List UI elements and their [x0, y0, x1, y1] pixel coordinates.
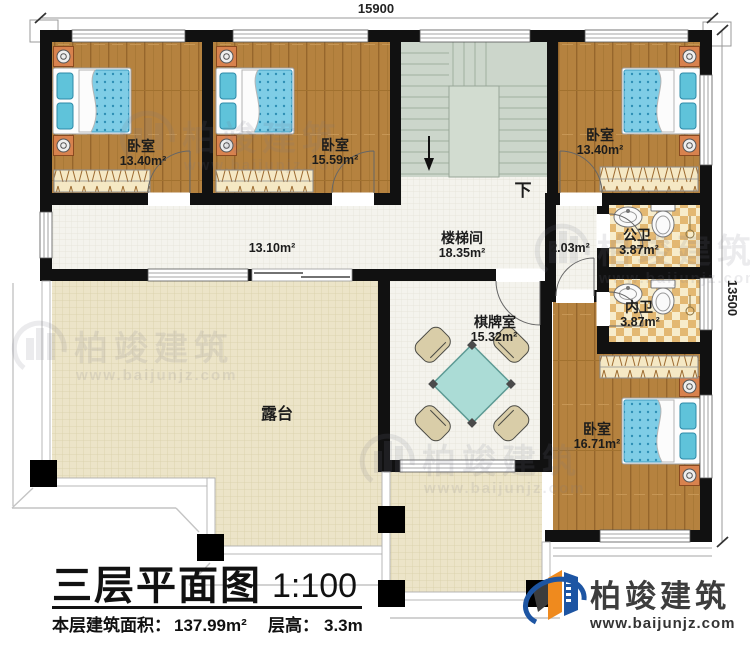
floor-plan-canvas: 柏竣建筑 www.baijunjz.com	[0, 0, 750, 645]
toilet-icon	[652, 288, 674, 314]
room-area-game-room: 15.32m²	[471, 330, 518, 344]
window	[40, 212, 52, 258]
plan-title: 三层平面图	[52, 564, 262, 608]
corridor-area: 13.10m²	[249, 241, 296, 255]
room-label-game-room: 棋牌室	[474, 314, 516, 330]
floor-height-value: 3.3m	[324, 616, 363, 635]
terrace-floor	[52, 281, 390, 546]
brand-logo: 柏竣建筑 www.baijunjz.com	[525, 570, 735, 632]
room-area-bedroom-tr: 13.40m²	[577, 143, 624, 157]
floor-height-label: 层高：	[268, 615, 319, 635]
dimension-right: 13500	[725, 280, 740, 316]
title-underline	[52, 606, 362, 609]
room-area-public-bath: 3.87m²	[619, 243, 659, 257]
floor-area-label: 本层建筑面积：	[52, 615, 171, 635]
sliding-door	[252, 269, 352, 281]
stair-landing	[449, 86, 499, 177]
column	[30, 460, 57, 487]
window	[72, 30, 185, 42]
floor-area-value: 137.99m²	[174, 616, 247, 635]
brand-company: 柏竣建筑	[590, 579, 730, 614]
dimension-top: 15900	[358, 1, 394, 16]
stair-down-label: 下	[515, 181, 532, 200]
railing	[42, 281, 50, 486]
window	[700, 395, 712, 478]
column	[197, 534, 224, 561]
room-label-inner-bath: 内卫	[625, 299, 653, 315]
column	[378, 506, 405, 533]
window	[700, 75, 712, 165]
plan-scale: 1:100	[272, 567, 357, 605]
room-label-stairwell: 楼梯间	[441, 230, 483, 246]
railing	[207, 546, 390, 554]
room-label-terrace: 露台	[261, 404, 293, 423]
window	[420, 30, 530, 42]
room-label-public-bath: 公卫	[623, 227, 651, 243]
room-area-bedroom-tl: 13.40m²	[120, 154, 167, 168]
room-label-bedroom-tm: 卧室	[321, 137, 349, 153]
railing	[42, 478, 215, 486]
title-block: 三层平面图 1:100 本层建筑面积： 137.99m² 层高： 3.3m	[52, 564, 363, 635]
window	[585, 30, 688, 42]
room-area-stairwell: 18.35m²	[439, 246, 486, 260]
brand-website: www.baijunjz.com	[589, 615, 735, 632]
room-area-bedroom-tm: 15.59m²	[312, 153, 359, 167]
room-area-inner-bath: 3.87m²	[620, 315, 660, 329]
hall-area: 2.03m²	[550, 241, 590, 255]
column	[378, 580, 405, 607]
window	[148, 269, 248, 281]
window	[233, 30, 368, 42]
window	[600, 530, 690, 542]
room-area-bedroom-br: 16.71m²	[574, 437, 621, 451]
room-label-bedroom-br: 卧室	[583, 421, 611, 437]
room-label-bedroom-tl: 卧室	[127, 138, 155, 154]
room-label-bedroom-tr: 卧室	[586, 127, 614, 143]
